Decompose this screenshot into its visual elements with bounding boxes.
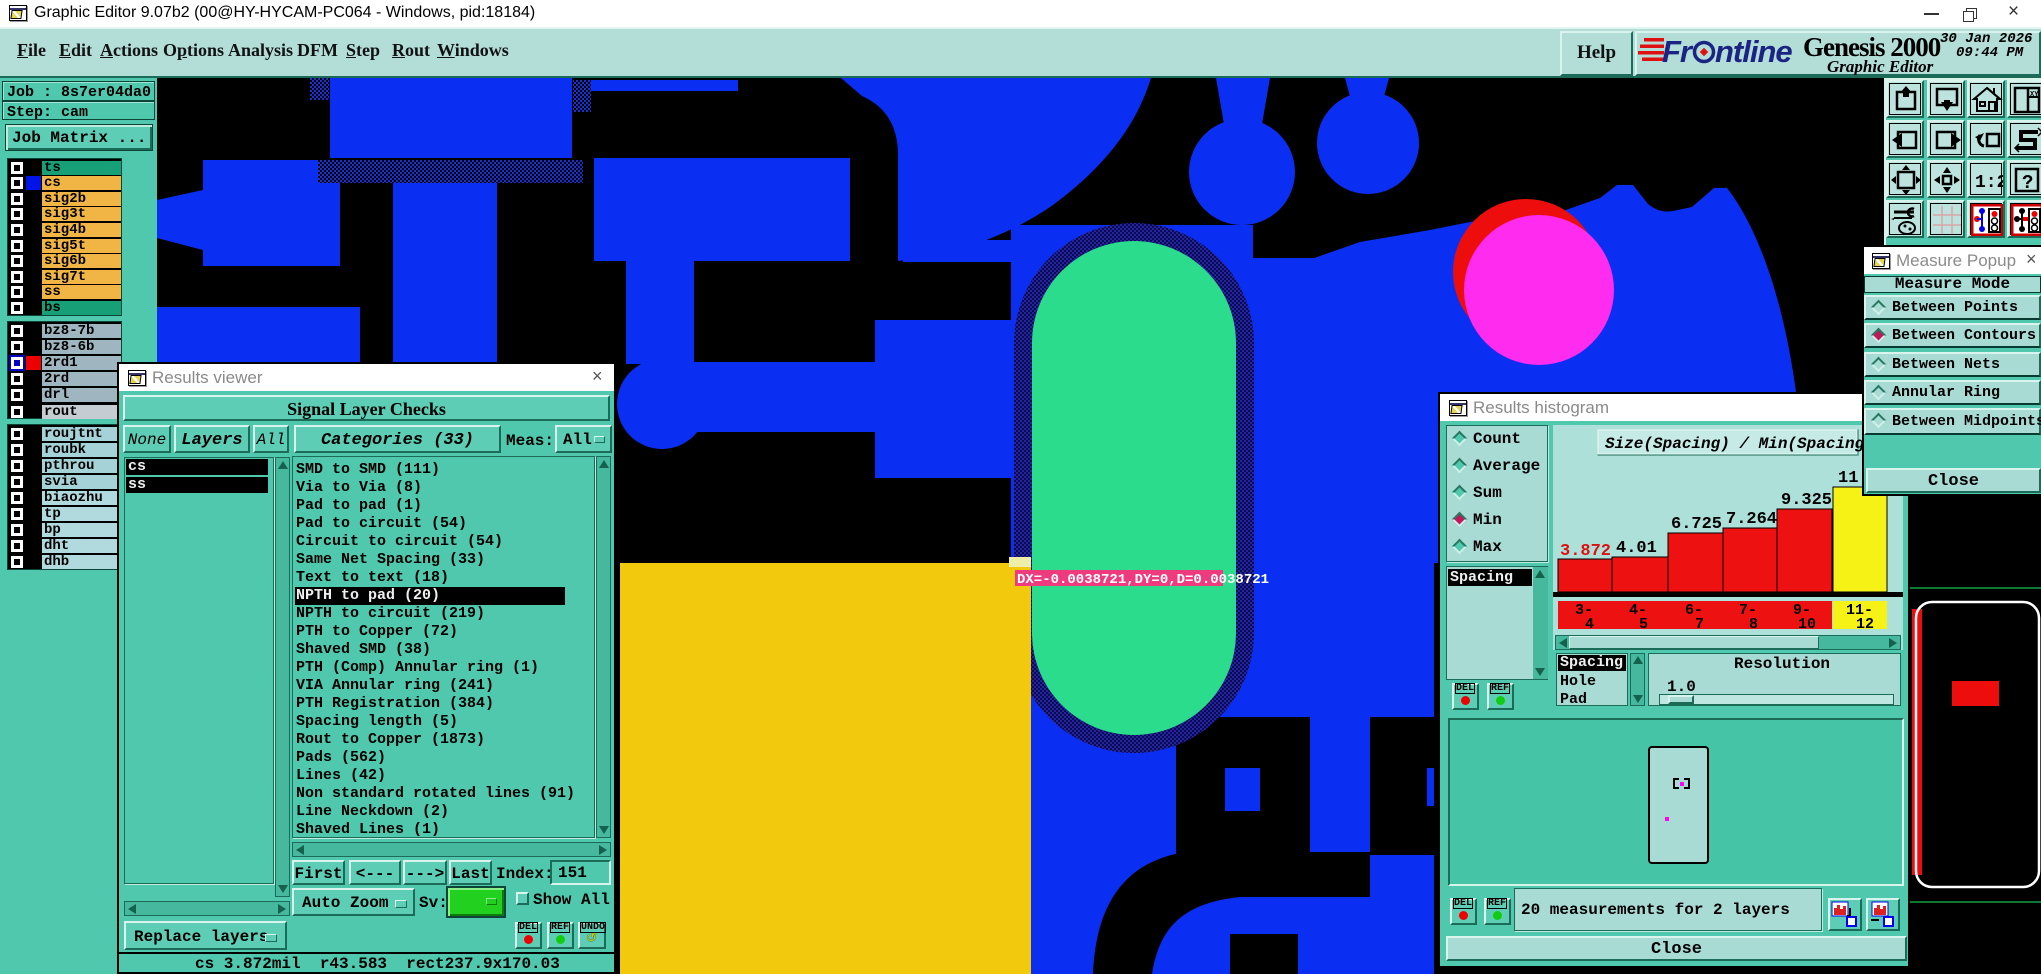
svg-text:4.01: 4.01 bbox=[1616, 539, 1657, 558]
svg-text:Size(Spacing) / Min(Spacing): Size(Spacing) / Min(Spacing) bbox=[1605, 435, 1874, 453]
svg-text:7: 7 bbox=[1695, 616, 1704, 633]
svg-text:?: ? bbox=[2022, 172, 2033, 194]
svg-text:ntline: ntline bbox=[1715, 34, 1792, 69]
svg-text:09:44 PM: 09:44 PM bbox=[1956, 45, 2024, 61]
svg-text:9.325: 9.325 bbox=[1781, 491, 1832, 510]
svg-text:Fr: Fr bbox=[1662, 34, 1694, 69]
svg-text:10: 10 bbox=[1798, 616, 1816, 633]
svg-text:6.725: 6.725 bbox=[1671, 515, 1722, 534]
svg-text:12: 12 bbox=[1856, 616, 1874, 633]
svg-text:7.264: 7.264 bbox=[1726, 510, 1777, 529]
svg-text:Graphic Editor: Graphic Editor bbox=[1827, 57, 1934, 75]
svg-text:5: 5 bbox=[1639, 616, 1648, 633]
svg-text:8: 8 bbox=[1749, 616, 1758, 633]
svg-text:4: 4 bbox=[1585, 616, 1594, 633]
svg-text:1:2: 1:2 bbox=[1975, 173, 2003, 193]
svg-text:3.872: 3.872 bbox=[1560, 542, 1611, 561]
svg-text:DX=-0.0038721,DY=0,D=0.0038721: DX=-0.0038721,DY=0,D=0.0038721 bbox=[1017, 572, 1269, 588]
svg-text:XY: XY bbox=[2030, 91, 2039, 99]
